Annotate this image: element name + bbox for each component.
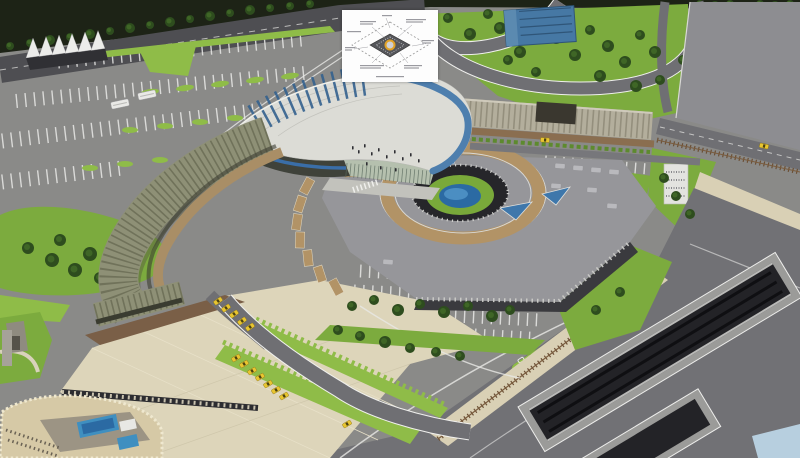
architectural-rendering	[0, 0, 800, 458]
site-plan-ring	[386, 41, 395, 50]
site-plan-inset	[342, 10, 438, 82]
canopy-opening	[535, 102, 576, 125]
blue-utility-building	[504, 6, 576, 47]
